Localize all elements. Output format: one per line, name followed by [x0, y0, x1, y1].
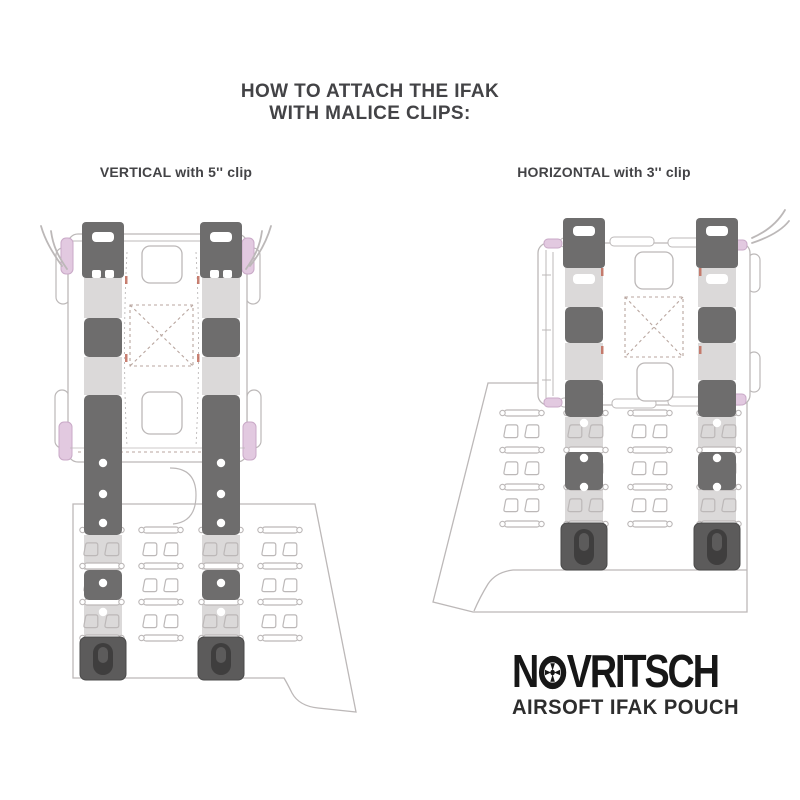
clip-buckle-slot — [98, 647, 108, 663]
strap-under-webbing — [698, 490, 736, 523]
molle-bar-slot — [504, 521, 540, 527]
molle-bar-end — [628, 447, 633, 452]
malice-clip-segment — [698, 380, 736, 417]
page-title-line2: WITH MALICE CLIPS: — [241, 103, 499, 125]
horizontal-figure-label: HORIZONTAL with 3'' clip — [517, 164, 691, 180]
pouch-window-bottom — [142, 392, 182, 434]
molle-bar-slot — [84, 563, 120, 569]
molle-bar-end — [178, 599, 183, 604]
molle-bar-end — [539, 447, 544, 452]
molle-bar-end — [539, 521, 544, 526]
molle-bar-end — [628, 410, 633, 415]
molle-bar-end — [199, 599, 204, 604]
molle-bar-end — [628, 484, 633, 489]
clip-buckle-slot — [216, 647, 226, 663]
snap-rivet — [217, 579, 225, 587]
molle-bar-end — [736, 410, 741, 415]
molle-bar-end — [500, 521, 505, 526]
molle-bar-end — [667, 410, 672, 415]
pouch-window-top — [142, 246, 182, 283]
molle-bar-end — [80, 563, 85, 568]
molle-bar-end — [564, 447, 569, 452]
molle-bar-slot — [143, 563, 179, 569]
snap-rivet — [580, 419, 588, 427]
strap-under-webbing — [202, 278, 240, 318]
clip-slot — [210, 232, 232, 242]
molle-bar-end — [238, 599, 243, 604]
snap-rivet — [99, 459, 107, 467]
molle-bar-slot — [632, 410, 668, 416]
clip-slot — [92, 232, 114, 242]
malice-clip-segment — [563, 218, 605, 268]
molle-bar-slot — [143, 527, 179, 533]
molle-bar-end — [500, 410, 505, 415]
molle-bar-end — [80, 599, 85, 604]
reticle-icon — [537, 654, 567, 691]
snap-rivet — [99, 490, 107, 498]
snap-rivet — [713, 483, 721, 491]
strap-under-webbing — [84, 278, 122, 318]
strap-under-webbing — [84, 357, 122, 395]
snap-rivet — [217, 459, 225, 467]
molle-bar-end — [667, 521, 672, 526]
snap-rivet — [580, 454, 588, 462]
molle-bar-end — [697, 447, 702, 452]
molle-bar-end — [539, 410, 544, 415]
strap-under-webbing — [565, 268, 603, 307]
molle-bar-slot — [262, 635, 298, 641]
malice-clip-segment — [698, 307, 736, 343]
molle-bar-end — [603, 484, 608, 489]
molle-bar-slot — [262, 527, 298, 533]
molle-bar-end — [258, 635, 263, 640]
vertical-figure-label: VERTICAL with 5'' clip — [100, 164, 252, 180]
molle-bar-end — [297, 635, 302, 640]
strap-under-webbing — [698, 343, 736, 380]
molle-bar-end — [628, 521, 633, 526]
molle-bar-slot — [262, 599, 298, 605]
pouch-window-top — [635, 252, 673, 289]
molle-bar-slot — [632, 484, 668, 490]
molle-bar-end — [667, 447, 672, 452]
molle-bar-end — [139, 635, 144, 640]
molle-bar-end — [736, 484, 741, 489]
malice-clip-segment — [84, 318, 122, 357]
molle-bar-end — [258, 599, 263, 604]
molle-bar-end — [736, 447, 741, 452]
strap-under-webbing — [565, 490, 603, 523]
molle-bar-slot — [143, 599, 179, 605]
molle-bar-end — [667, 484, 672, 489]
clip-notch — [223, 270, 232, 278]
molle-bar-slot — [203, 563, 239, 569]
malice-clip-segment — [82, 222, 124, 278]
molle-bar-end — [500, 484, 505, 489]
pink-elastic — [242, 238, 254, 274]
molle-bar-end — [238, 563, 243, 568]
molle-bar-slot — [143, 635, 179, 641]
molle-bar-end — [119, 599, 124, 604]
molle-bar-end — [199, 563, 204, 568]
molle-bar-end — [139, 527, 144, 532]
molle-bar-end — [297, 527, 302, 532]
pouch-window-bottom — [637, 363, 673, 401]
pink-elastic — [59, 422, 72, 460]
clip-buckle-slot — [579, 533, 589, 551]
molle-bar-end — [139, 563, 144, 568]
clip-buckle-slot — [712, 533, 722, 551]
snap-rivet — [580, 483, 588, 491]
clip-notch — [105, 270, 114, 278]
pink-elastic — [544, 239, 562, 248]
molle-bar-end — [539, 484, 544, 489]
strap-under-webbing — [565, 343, 603, 380]
molle-bar-end — [258, 563, 263, 568]
clip-slot — [706, 226, 728, 236]
snap-rivet — [99, 519, 107, 527]
clip-slot — [573, 274, 595, 284]
strap-under-webbing — [202, 357, 240, 395]
page-title: HOW TO ATTACH THE IFAK WITH MALICE CLIPS… — [241, 81, 499, 125]
molle-bar-end — [178, 563, 183, 568]
snap-rivet — [713, 419, 721, 427]
molle-bar-slot — [632, 521, 668, 527]
lid-edge-tab — [610, 237, 654, 246]
malice-clip-segment — [565, 307, 603, 343]
molle-bar-end — [139, 599, 144, 604]
molle-bar-slot — [632, 447, 668, 453]
malice-clip-segment — [565, 380, 603, 417]
pink-elastic — [243, 422, 256, 460]
pink-elastic — [544, 398, 562, 407]
molle-bar-end — [603, 447, 608, 452]
product-name: AIRSOFT IFAK POUCH — [512, 696, 753, 720]
snap-rivet — [217, 519, 225, 527]
malice-clip-segment — [696, 218, 738, 268]
molle-bar-end — [297, 563, 302, 568]
molle-bar-slot — [262, 563, 298, 569]
molle-bar-end — [500, 447, 505, 452]
brand-prefix: N — [512, 644, 537, 698]
molle-bar-end — [258, 527, 263, 532]
page-title-line1: HOW TO ATTACH THE IFAK — [241, 81, 499, 103]
snap-rivet — [217, 608, 225, 616]
molle-bar-end — [178, 527, 183, 532]
molle-bar-slot — [504, 410, 540, 416]
bungee-cord — [752, 210, 789, 243]
clip-slot — [706, 274, 728, 284]
molle-bar-end — [119, 563, 124, 568]
molle-bar-end — [178, 635, 183, 640]
brand-logo: N VRITSCH AIRSOFT IFAK POUCH — [512, 649, 763, 720]
strap-under-webbing — [698, 268, 736, 307]
instruction-sheet: HOW TO ATTACH THE IFAK WITH MALICE CLIPS… — [0, 0, 800, 800]
snap-rivet — [99, 608, 107, 616]
molle-bar-end — [603, 410, 608, 415]
brand-suffix: VRITSCH — [567, 644, 718, 698]
malice-clip-segment — [202, 318, 240, 357]
malice-clip-segment — [200, 222, 242, 278]
molle-bar-slot — [504, 484, 540, 490]
molle-bar-slot — [504, 447, 540, 453]
snap-rivet — [217, 490, 225, 498]
brand-wordmark: N VRITSCH — [512, 649, 718, 693]
snap-rivet — [713, 454, 721, 462]
clip-notch — [210, 270, 219, 278]
snap-rivet — [99, 579, 107, 587]
molle-bar-end — [297, 599, 302, 604]
clip-slot — [573, 226, 595, 236]
clip-notch — [92, 270, 101, 278]
